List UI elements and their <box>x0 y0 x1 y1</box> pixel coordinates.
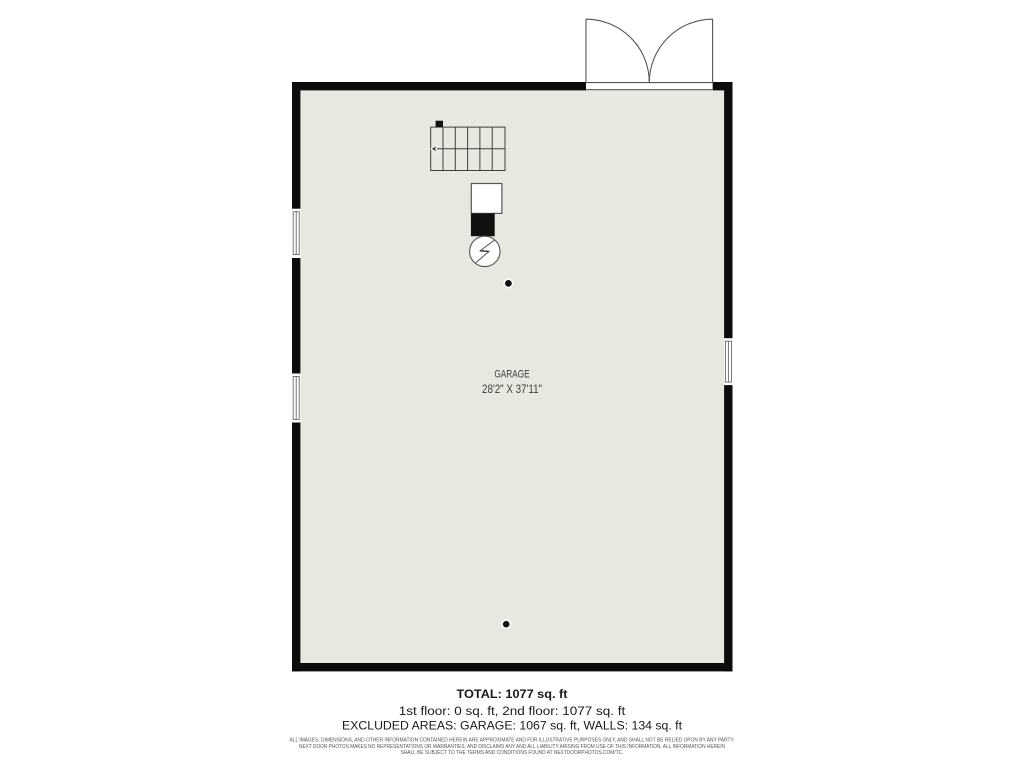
svg-text:EXCLUDED AREAS: GARAGE: 1067 s: EXCLUDED AREAS: GARAGE: 1067 sq. ft, WAL… <box>342 718 683 732</box>
svg-text:NEXT DOOR PHOTOS MAKES NO REPR: NEXT DOOR PHOTOS MAKES NO REPRESENTATION… <box>299 744 725 750</box>
svg-text:GARAGE: GARAGE <box>494 368 529 380</box>
svg-text:TOTAL: 1077 sq. ft: TOTAL: 1077 sq. ft <box>457 687 568 701</box>
svg-text:28'2" X 37'11": 28'2" X 37'11" <box>482 384 542 396</box>
svg-text:1st floor: 0 sq. ft, 2nd floor: 1st floor: 0 sq. ft, 2nd floor: 1077 sq.… <box>399 704 626 718</box>
svg-text:ALL IMAGES, DIMENSIONS, AND OT: ALL IMAGES, DIMENSIONS, AND OTHER INFORM… <box>290 738 735 744</box>
svg-text:SHALL BE SUBJECT TO THE TERMS: SHALL BE SUBJECT TO THE TERMS AND CONDIT… <box>401 750 624 756</box>
